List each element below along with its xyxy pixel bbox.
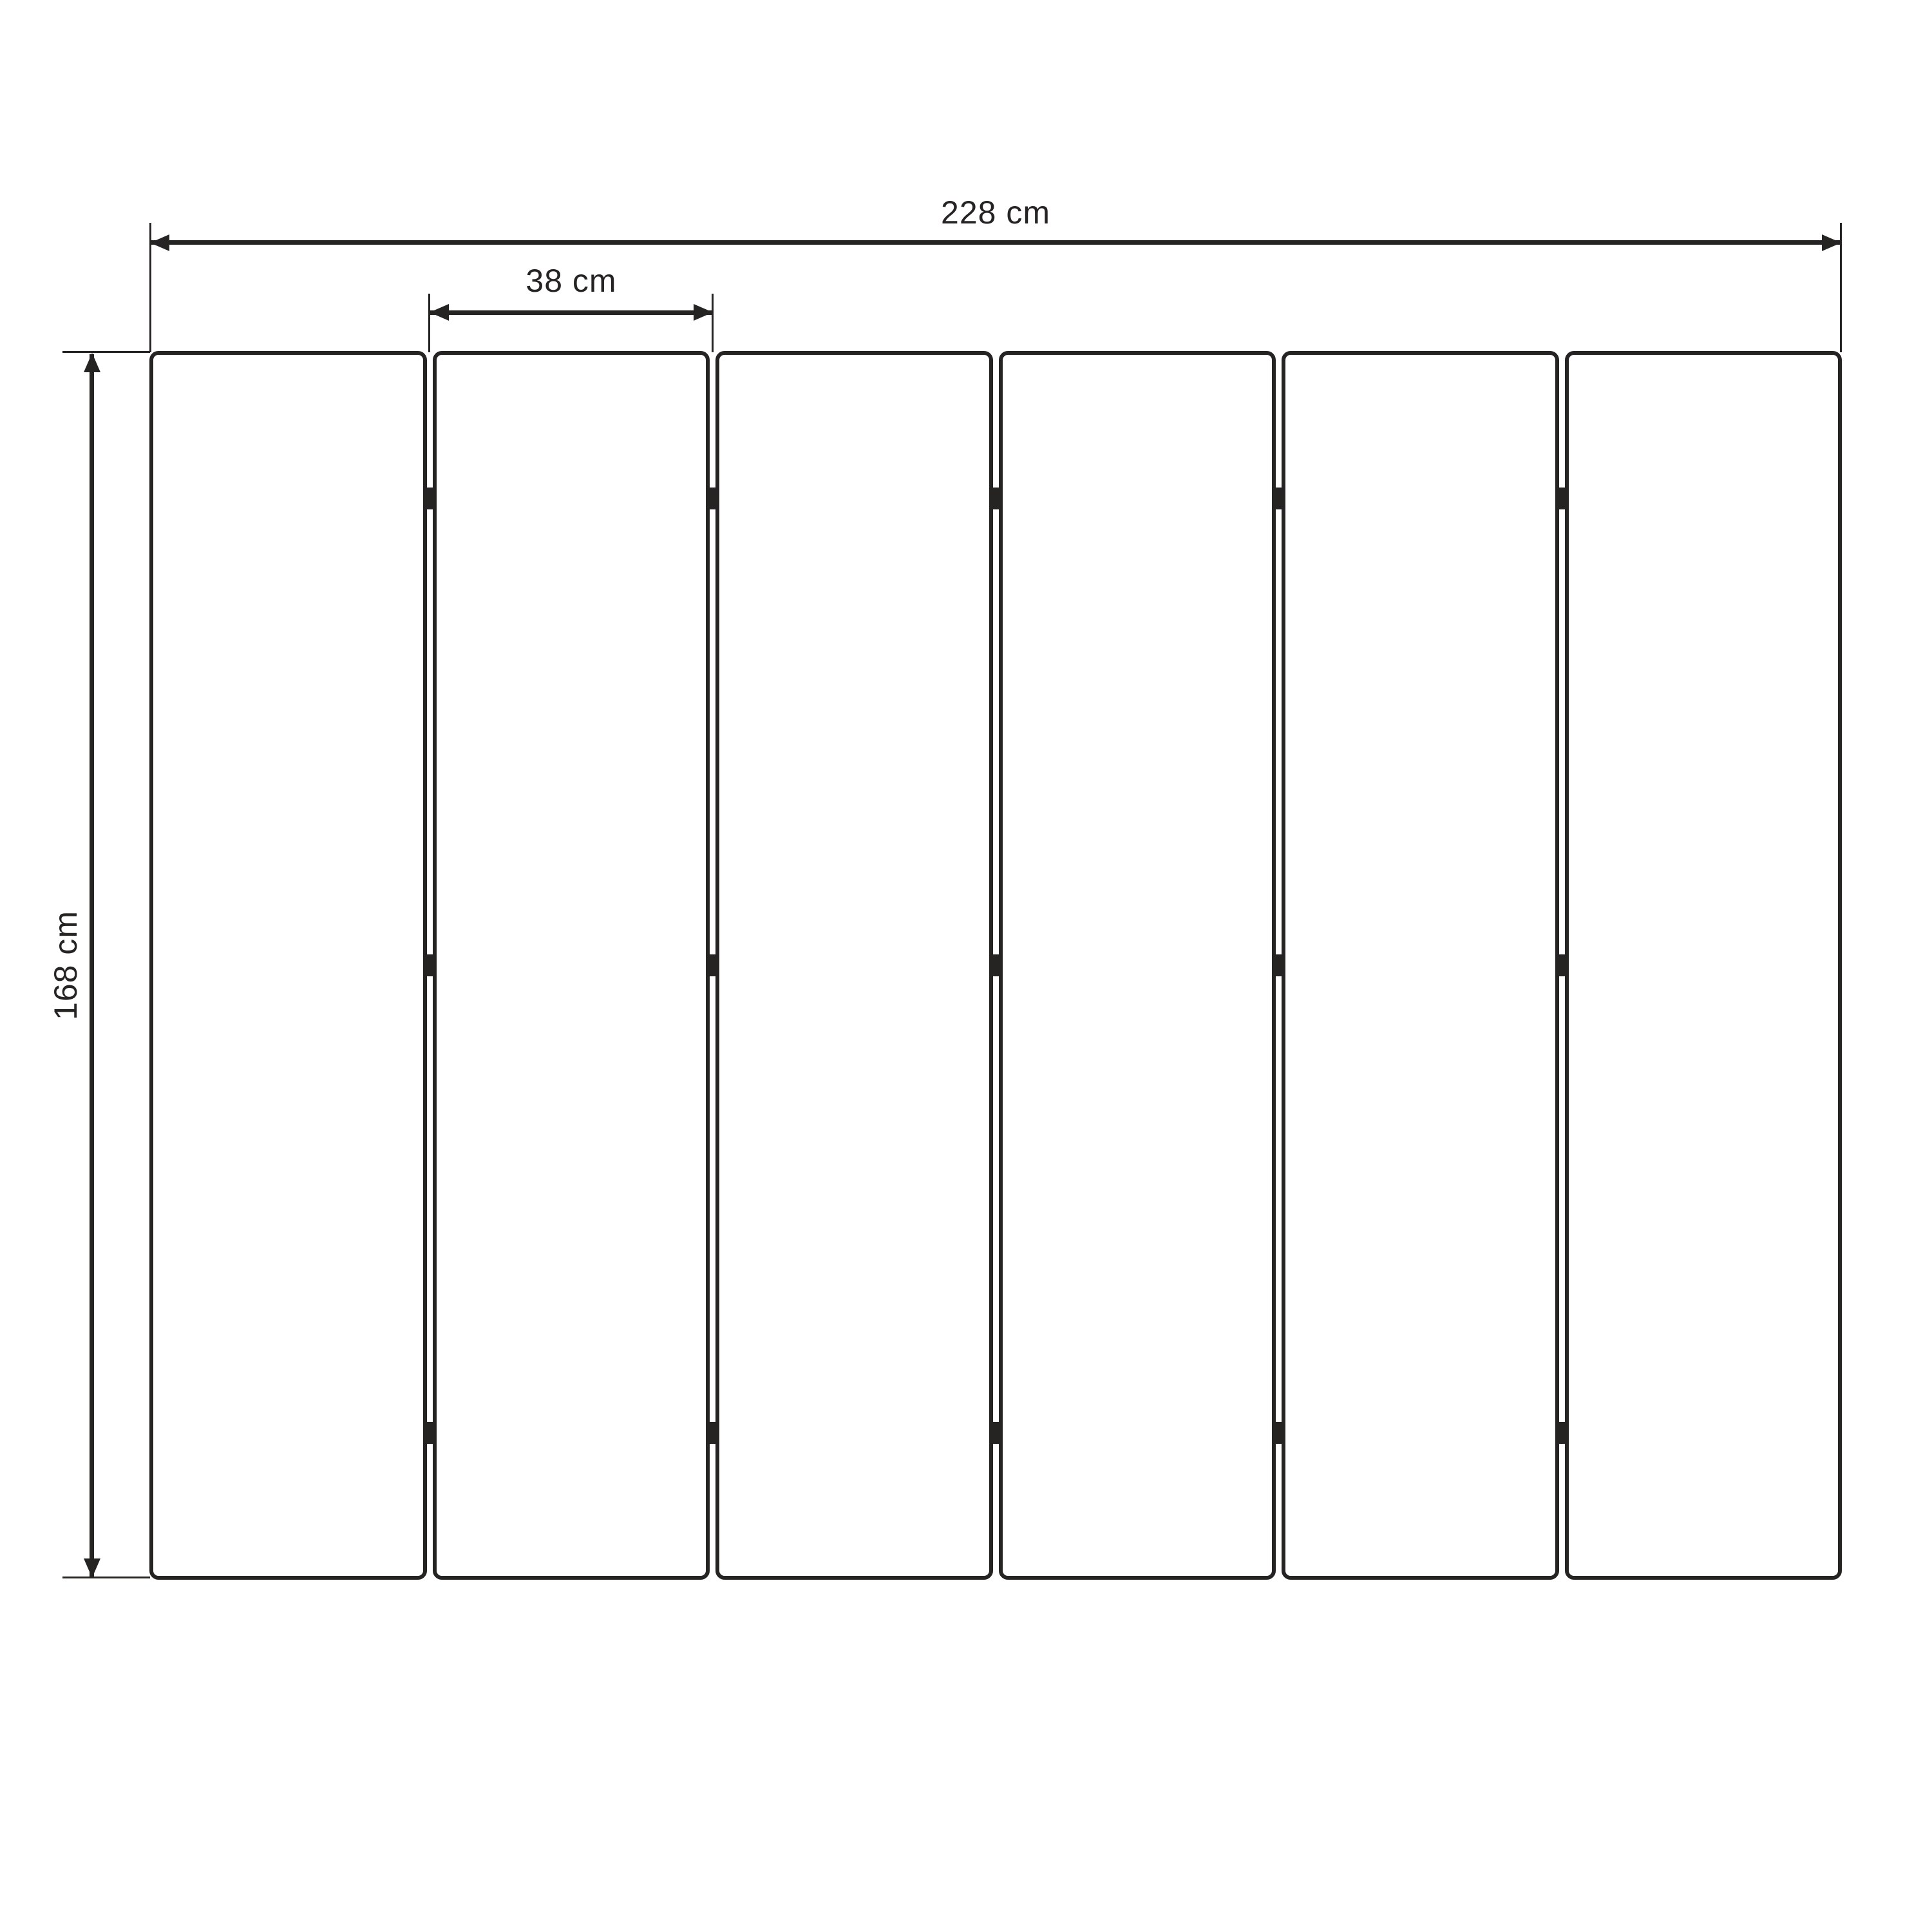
dimension-arrow-left-icon — [150, 234, 169, 251]
dimension-arrow-down-icon — [84, 1558, 100, 1578]
diagram-canvas: 228 cm 38 cm 168 cm — [0, 0, 1932, 1932]
hinge — [1274, 1422, 1284, 1444]
hinge — [1557, 954, 1567, 976]
hinge — [990, 954, 1001, 976]
screen-panel — [715, 351, 993, 1580]
dimension-arrow-right-icon — [694, 304, 713, 321]
extension-line — [62, 351, 150, 353]
hinge — [424, 1422, 435, 1444]
hinge — [1557, 1422, 1567, 1444]
screen-panel — [433, 351, 710, 1580]
extension-line — [712, 294, 714, 352]
screen-panel — [999, 351, 1276, 1580]
hinge — [708, 954, 718, 976]
total-width-dimension-line — [150, 240, 1841, 245]
hinge — [990, 488, 1001, 509]
screen-panel — [1565, 351, 1842, 1580]
panel-width-label: 38 cm — [526, 265, 616, 297]
hinge — [708, 1422, 718, 1444]
hinge — [424, 954, 435, 976]
hinge — [1557, 488, 1567, 509]
hinge — [1274, 954, 1284, 976]
height-label: 168 cm — [50, 911, 82, 1020]
screen-panel — [1282, 351, 1559, 1580]
hinge — [424, 488, 435, 509]
dimension-arrow-right-icon — [1822, 234, 1841, 251]
screen-panel — [149, 351, 427, 1580]
hinge — [708, 488, 718, 509]
dimension-arrow-up-icon — [84, 353, 100, 372]
hinge — [990, 1422, 1001, 1444]
total-width-label: 228 cm — [941, 196, 1050, 229]
hinge — [1274, 488, 1284, 509]
height-dimension-line — [90, 354, 94, 1577]
panel-width-dimension-line — [430, 310, 713, 315]
extension-line — [428, 294, 430, 352]
extension-line — [62, 1577, 150, 1578]
dimension-arrow-left-icon — [430, 304, 449, 321]
